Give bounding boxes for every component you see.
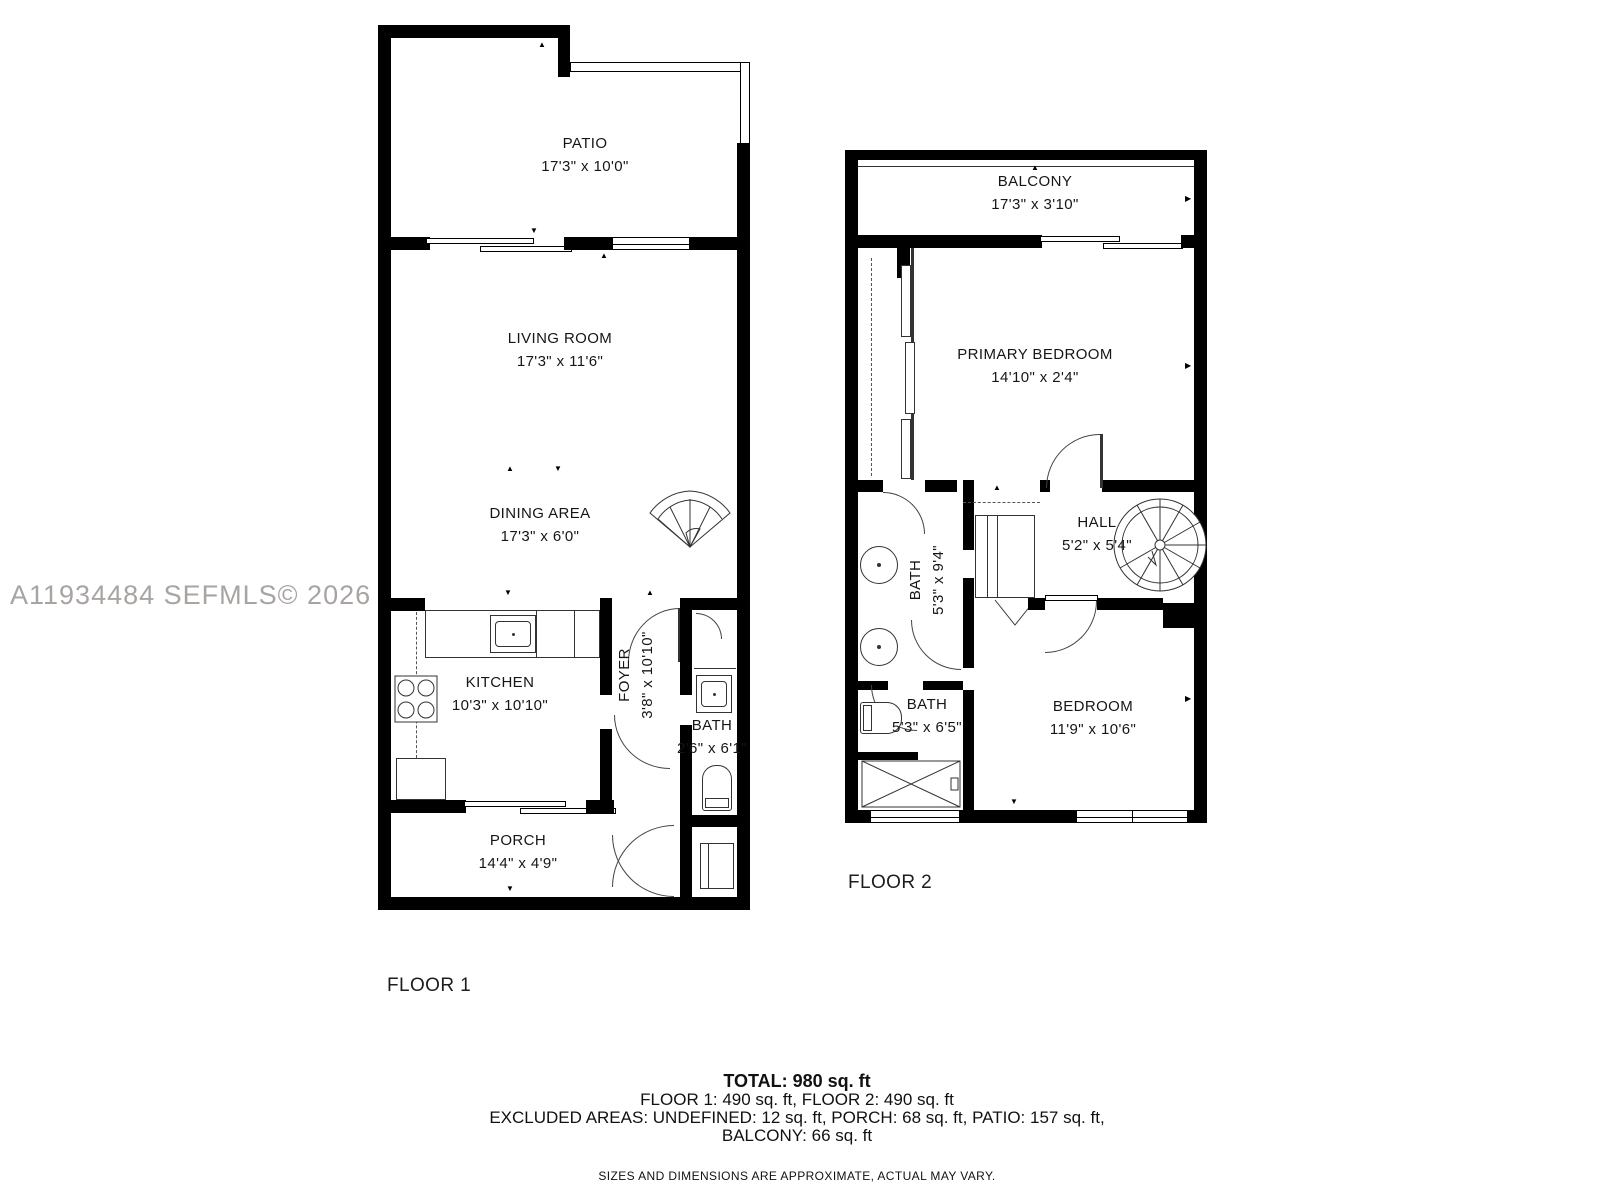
closet-panel (905, 342, 915, 414)
dimension-tick: ▼ (530, 227, 538, 235)
closet-panel (901, 419, 911, 479)
dimension-tick: ◀ (380, 522, 386, 530)
sliding-door (1103, 243, 1183, 249)
window (870, 810, 960, 823)
summary-disclaimer: SIZES AND DIMENSIONS ARE APPROXIMATE, AC… (0, 1169, 1594, 1183)
wall (963, 480, 974, 550)
window (1076, 810, 1188, 823)
wall (1194, 150, 1207, 823)
shower-icon (861, 760, 961, 808)
sliding-door (464, 801, 566, 807)
balcony-rail-line (858, 166, 1195, 167)
wall (1181, 235, 1207, 248)
door-arc (1046, 434, 1100, 488)
room-dims: 5'3" x 6'5" (892, 716, 962, 739)
wall (378, 897, 750, 910)
room-label-kitchen: KITCHEN 10'3" x 10'10" (452, 671, 548, 717)
stair-dashed-line (963, 502, 1040, 503)
floor1-label: FLOOR 1 (387, 975, 471, 997)
door-leaf (1100, 434, 1103, 488)
room-dims: 10'3" x 10'10" (452, 694, 548, 717)
room-dims: 5'3" x 9'4" (927, 545, 950, 615)
room-dims: 11'9" x 10'6" (1050, 718, 1136, 741)
fan-staircase-icon (648, 485, 732, 549)
room-name: BATH (677, 714, 747, 737)
wall (858, 752, 918, 760)
dimension-tick: ◀ (847, 580, 853, 588)
vanity-sink-icon (860, 628, 898, 666)
dimension-tick: ▲ (506, 465, 514, 473)
room-name: LIVING ROOM (508, 327, 612, 350)
wall (680, 598, 750, 610)
room-name: DINING AREA (489, 502, 590, 525)
dimension-tick: ◀ (380, 171, 386, 179)
room-dims: 14'10" x 2'4" (957, 366, 1112, 389)
dimension-tick: ▶ (1185, 695, 1191, 703)
wall (963, 690, 974, 810)
floor2-plan: BALCONY 17'3" x 3'10" PRIMARY BEDROOM 14… (845, 150, 1207, 823)
room-label-bath-lower: BATH 5'3" x 6'5" (892, 693, 962, 739)
wall (680, 815, 750, 827)
wall (378, 800, 466, 813)
room-label-dining: DINING AREA 17'3" x 6'0" (489, 502, 590, 548)
closet-dashed-line (871, 258, 872, 476)
dimension-tick: ▲ (600, 252, 608, 260)
door-arc (911, 620, 961, 670)
dimension-tick: ◀ (847, 195, 853, 203)
dimension-tick: ◀ (380, 377, 386, 385)
wall (586, 800, 614, 813)
closet-shelf-line (694, 668, 736, 669)
washer-detail (708, 843, 709, 889)
kitchen-sink-icon (490, 615, 536, 653)
room-label-balcony: BALCONY 17'3" x 3'10" (991, 170, 1078, 216)
room-label-patio: PATIO 17'3" x 10'0" (541, 132, 628, 178)
room-dims: 17'3" x 10'0" (541, 155, 628, 178)
wall (378, 25, 570, 38)
room-name: BATH (892, 693, 962, 716)
room-label-hall: HALL 5'2" x 5'4" (1062, 511, 1132, 557)
room-label-living: LIVING ROOM 17'3" x 11'6" (508, 327, 612, 373)
wall (1163, 603, 1195, 628)
room-name: BEDROOM (1050, 695, 1136, 718)
sliding-door (480, 246, 572, 252)
patio-railing (740, 62, 750, 147)
mls-watermark: A11934484 SEFMLS© 2026 (10, 580, 371, 611)
dimension-tick: ▶ (740, 522, 746, 530)
sliding-door (1040, 236, 1120, 242)
wall (963, 578, 974, 668)
dimension-tick: ▲ (993, 484, 1001, 492)
dimension-tick: ▶ (1185, 195, 1191, 203)
bathroom-sink-icon (696, 675, 732, 713)
dimension-tick: ◀ (380, 847, 386, 855)
area-summary: TOTAL: 980 sq. ft FLOOR 1: 490 sq. ft, F… (0, 1072, 1594, 1183)
wall (1097, 598, 1163, 610)
room-label-bath: BATH 2'6" x 6'1" (677, 714, 747, 760)
toilet-icon (702, 765, 732, 811)
room-dims: 14'4" x 4'9" (479, 852, 558, 875)
room-dims: 17'3" x 11'6" (508, 350, 612, 373)
dimension-tick: ▶ (1185, 362, 1191, 370)
wall (845, 235, 1042, 248)
wall (378, 25, 391, 910)
room-name: FOYER (613, 631, 636, 718)
dimension-tick: ▶ (740, 377, 746, 385)
room-name: BALCONY (991, 170, 1078, 193)
stairwell-closet (975, 515, 1035, 598)
wall (378, 237, 430, 250)
kitchen-cabinet (396, 758, 446, 800)
dimension-tick: ▼ (504, 589, 512, 597)
counter-divider (574, 610, 575, 658)
summary-floors: FLOOR 1: 490 sq. ft, FLOOR 2: 490 sq. ft (0, 1091, 1594, 1109)
wall (923, 681, 963, 690)
wall (845, 150, 858, 823)
floor1-plan: PATIO 17'3" x 10'0" LIVING ROOM 17'3" x … (378, 25, 750, 910)
room-label-primary-bedroom: PRIMARY BEDROOM 14'10" x 2'4" (957, 343, 1112, 389)
stair-divider (987, 515, 988, 598)
washer-icon (700, 843, 734, 889)
dimension-tick: ▼ (506, 885, 514, 893)
dimension-tick: ▲ (646, 589, 654, 597)
door-arc (696, 613, 722, 639)
stove-icon (394, 675, 438, 723)
room-label-porch: PORCH 14'4" x 4'9" (479, 829, 558, 875)
wall (558, 25, 570, 77)
dimension-tick: ▼ (1010, 798, 1018, 806)
summary-excluded-areas: EXCLUDED AREAS: UNDEFINED: 12 sq. ft, PO… (477, 1109, 1117, 1145)
door-arc (614, 715, 670, 769)
wall (858, 480, 883, 492)
room-name: PATIO (541, 132, 628, 155)
wall (600, 598, 612, 695)
room-label-bedroom: BEDROOM 11'9" x 10'6" (1050, 695, 1136, 741)
wall (925, 480, 957, 492)
wall (690, 237, 750, 250)
room-name: PORCH (479, 829, 558, 852)
wall (680, 610, 692, 695)
dimension-tick: ▲ (538, 41, 546, 49)
room-label-foyer: FOYER 3'8" x 10'10" (613, 631, 659, 718)
wall (845, 150, 1207, 160)
counter-divider (536, 610, 537, 658)
room-label-bath-upper: BATH 5'3" x 9'4" (904, 545, 950, 615)
door-leaf (678, 608, 680, 662)
room-name: KITCHEN (452, 671, 548, 694)
door-arc (883, 492, 925, 534)
wall (1028, 598, 1045, 610)
door-arc (612, 835, 674, 897)
wall (680, 827, 692, 910)
summary-total: TOTAL: 980 sq. ft (0, 1072, 1594, 1091)
dimension-tick: ◀ (380, 688, 386, 696)
wall (391, 598, 425, 611)
room-dims: 5'2" x 5'4" (1062, 534, 1132, 557)
wall (564, 237, 612, 250)
room-dims: 3'8" x 10'10" (636, 631, 659, 718)
room-dims: 17'3" x 6'0" (489, 525, 590, 548)
window (612, 237, 690, 250)
patio-railing (570, 62, 750, 72)
closet-panel (901, 265, 911, 337)
floor2-label: FLOOR 2 (848, 872, 932, 894)
room-name: PRIMARY BEDROOM (957, 343, 1112, 366)
room-dims: 17'3" x 3'10" (991, 193, 1078, 216)
stair-divider (997, 515, 998, 598)
sliding-door (426, 238, 534, 244)
room-name: BATH (904, 545, 927, 615)
room-dims: 2'6" x 6'1" (677, 737, 747, 760)
floor-plan-page: { "watermark": "A11934484 SEFMLS© 2026",… (0, 0, 1600, 1200)
dimension-tick: ▼ (554, 465, 562, 473)
wall (1102, 480, 1194, 492)
room-name: HALL (1062, 511, 1132, 534)
vanity-sink-icon (860, 546, 898, 584)
door-arc (1045, 601, 1097, 653)
